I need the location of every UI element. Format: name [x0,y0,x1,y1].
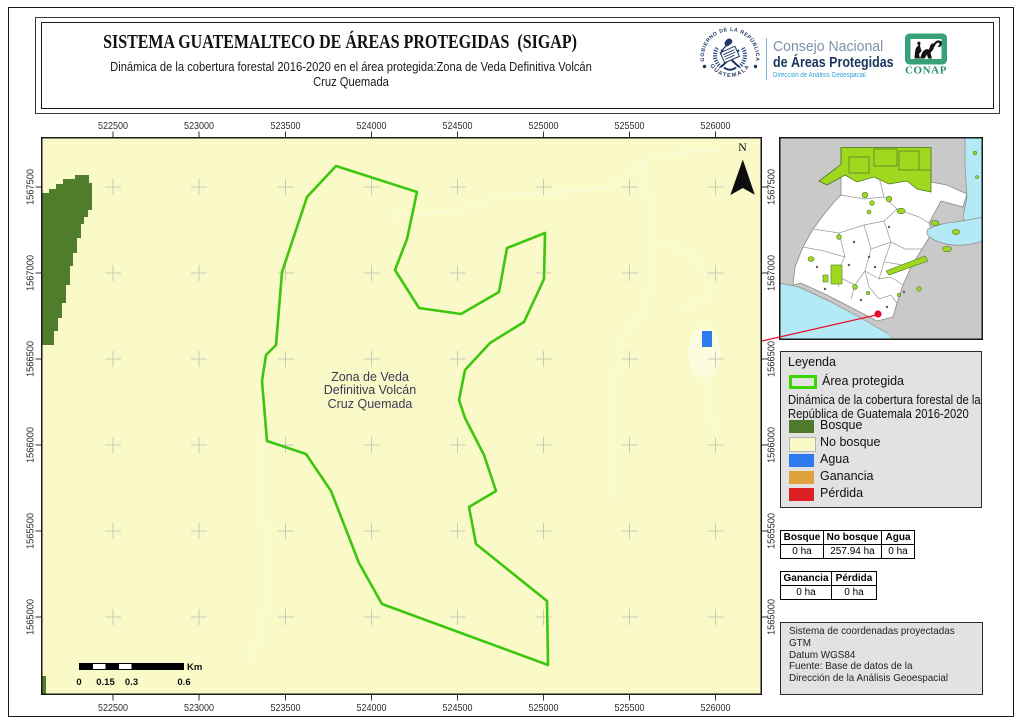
svg-text:N: N [738,140,747,154]
svg-text:GUATEMALA: GUATEMALA [708,63,751,79]
svg-text:Cruz Quemada: Cruz Quemada [328,397,413,411]
svg-text:Definitiva Volcán: Definitiva Volcán [324,383,416,397]
svg-text:Zona de Veda: Zona de Veda [331,370,409,384]
svg-text:CONAP: CONAP [905,65,947,77]
svg-text:0: 0 [76,677,81,688]
svg-text:0.6: 0.6 [177,677,190,688]
svg-text:0.15: 0.15 [96,677,115,688]
svg-text:0.3: 0.3 [125,677,138,688]
svg-text:Km: Km [187,662,202,673]
